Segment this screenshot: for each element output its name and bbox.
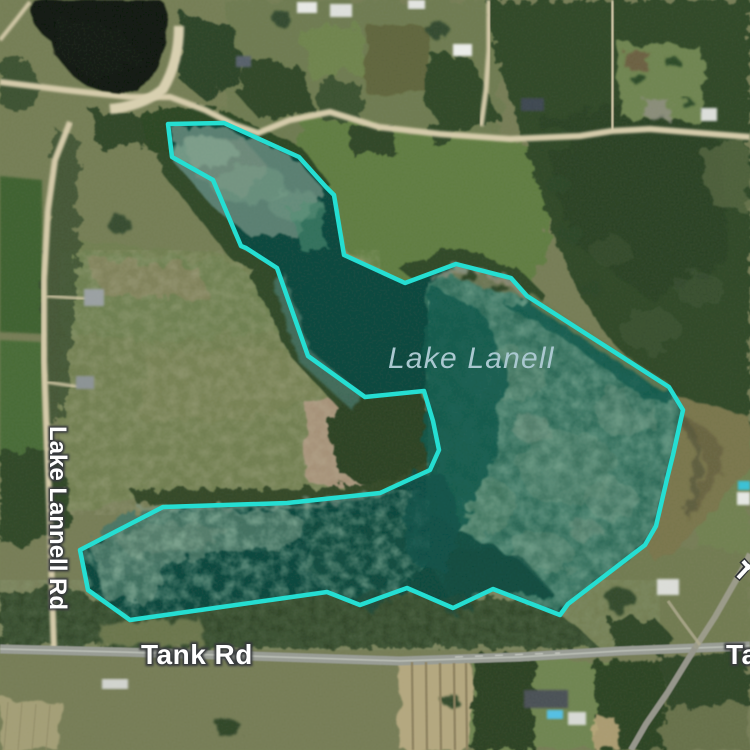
svg-text:Tank: Tank — [726, 639, 750, 670]
svg-text:Tank Rd: Tank Rd — [141, 639, 253, 670]
svg-text:Lake Lanell: Lake Lanell — [388, 342, 555, 375]
svg-text:Lake Lannell Rd: Lake Lannell Rd — [44, 426, 71, 610]
